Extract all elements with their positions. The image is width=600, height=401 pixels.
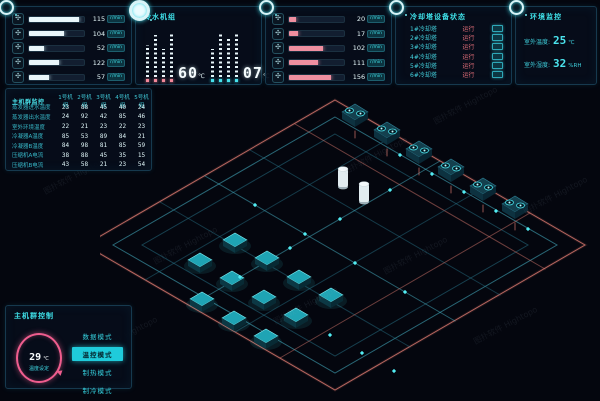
outdoor-temp-value: 25: [553, 34, 566, 47]
fan-icon: ✣: [12, 57, 24, 69]
cell-value: 85: [56, 133, 75, 140]
pump-bar: [28, 45, 85, 52]
cell-value: 40: [113, 104, 132, 111]
cell-value: 23: [94, 123, 113, 130]
chiller-unit: [248, 290, 280, 311]
tower-run-status: 运行: [450, 52, 487, 61]
tower-indicator[interactable]: [492, 53, 503, 60]
pump-value: 52: [89, 44, 105, 52]
cell-value: 38: [56, 152, 75, 159]
fan-icon: ✣: [12, 28, 24, 40]
tower-run-status: 运行: [450, 33, 487, 42]
pump-unit-badge: r/min: [367, 30, 385, 38]
chiller-unit: [186, 292, 218, 313]
return-temp-bars: [211, 33, 238, 82]
tower-name: 3#冷却塔: [410, 42, 450, 51]
tower-name: 5#冷却塔: [410, 61, 450, 70]
pipe-chilled-loop: [113, 117, 557, 373]
pump-value: 20: [349, 15, 365, 23]
cell-value: 21: [94, 161, 113, 168]
pump-bar: [288, 74, 345, 81]
pump-unit-badge: r/min: [367, 59, 385, 67]
cell-value: 21: [75, 123, 94, 130]
pump-row: ✣ 115 r/min: [12, 13, 125, 26]
chiller-unit: [280, 308, 312, 329]
panel-title: 冷水机组: [136, 7, 261, 24]
cell-value: 43: [56, 161, 75, 168]
tower-indicator[interactable]: [492, 71, 503, 78]
pump-row: ✣ 20 r/min: [272, 13, 385, 26]
storage-tanks: [338, 167, 369, 205]
pump-unit-badge: r/min: [107, 15, 125, 23]
fan-icon: ✣: [272, 42, 284, 54]
tower-run-status: 运行: [450, 24, 487, 33]
supply-temp-unit: ℃: [198, 73, 205, 80]
cell-value: 92: [75, 113, 94, 120]
fan-icon: ✣: [12, 71, 24, 83]
cell-value: 85: [113, 113, 132, 120]
table-row: 压缩机A电流 38 88 45 35 15: [12, 151, 147, 161]
cell-value: 24: [132, 104, 151, 111]
cell-value: 35: [113, 152, 132, 159]
tower-indicator[interactable]: [492, 43, 503, 50]
tower-status-row: 6#冷却塔 运行: [396, 70, 511, 79]
cell-value: 54: [132, 161, 151, 168]
panel-tower-status: 冷却塔设备状态 1#冷却塔 运行 2#冷却塔 运行 3#冷却塔 运行 4#冷却塔…: [395, 6, 512, 85]
outdoor-humidity: 室外湿度: 32 %RH: [524, 57, 590, 70]
panel-host-table: 主机群监控 1号机组 2号机组 3号机组 4号机组 5号机组 蒸发器进水温度 2…: [5, 88, 152, 171]
row-label: 压缩机B电流: [12, 161, 56, 169]
cell-value: 58: [75, 161, 94, 168]
pump-value: 102: [349, 44, 365, 52]
cell-value: 22: [113, 123, 132, 130]
table-row: 蒸发器进水温度 23 88 45 40 24: [12, 103, 147, 113]
pump-bar: [28, 59, 85, 66]
mode-button-temp-control[interactable]: 温控模式: [72, 347, 123, 361]
panel-environment: 环境监控 室外温度: 25 ℃ 室外湿度: 32 %RH: [515, 6, 597, 85]
cell-value: 85: [113, 142, 132, 149]
chiller-unit: [283, 270, 315, 291]
pump-unit-badge: r/min: [367, 44, 385, 52]
pump-bar: [288, 59, 345, 66]
mode-buttons: 数据模式 温控模式 制热模式 制冷模式: [72, 329, 123, 397]
tower-indicator[interactable]: [492, 62, 503, 69]
tower-name: 1#冷却塔: [410, 24, 450, 33]
fan-icon: ✣: [12, 42, 24, 54]
fan-icon: ✣: [272, 71, 284, 83]
pump-unit-badge: r/min: [367, 15, 385, 23]
tower-status-row: 1#冷却塔 运行: [396, 24, 511, 33]
cell-value: 84: [56, 142, 75, 149]
table-row: 冷凝器A温度 85 53 89 84 21: [12, 131, 147, 141]
pump-row: ✣ 104 r/min: [12, 27, 125, 40]
cell-value: 59: [132, 142, 151, 149]
temp-setpoint-gauge: 29℃ 温度设定: [16, 333, 62, 383]
outdoor-humidity-label: 室外湿度:: [524, 60, 550, 69]
fan-icon: ✣: [272, 57, 284, 69]
tower-status-row: 4#冷却塔 运行: [396, 52, 511, 61]
pipe-grid-line: [280, 213, 530, 358]
tower-run-status: 运行: [450, 61, 487, 70]
cell-value: 45: [94, 104, 113, 111]
table-row: 蒸发器出水温度 24 92 42 85 46: [12, 112, 147, 122]
pump-bar: [288, 45, 345, 52]
chiller-units: [184, 233, 347, 350]
row-label: 蒸发器进水温度: [12, 103, 56, 111]
pump-row: ✣ 122 r/min: [12, 56, 125, 69]
pump-unit-badge: r/min: [107, 30, 125, 38]
tank-cylinder: [359, 182, 369, 205]
pump-unit-badge: r/min: [107, 59, 125, 67]
pipe-condenser-loop: [100, 100, 585, 390]
panel-pumps-left: ✣ 115 r/min ✣ 104 r/min ✣ 52 r/min ✣ 122…: [5, 6, 132, 85]
pump-row: ✣ 156 r/min: [272, 71, 385, 84]
cell-value: 24: [56, 113, 75, 120]
cell-value: 23: [113, 161, 132, 168]
mode-button-data[interactable]: 数据模式: [72, 329, 123, 343]
pump-bar: [288, 16, 345, 23]
outdoor-temp-unit: ℃: [568, 40, 574, 46]
chiller-unit: [184, 253, 216, 274]
tower-name: 2#冷却塔: [410, 33, 450, 42]
chiller-unit: [250, 329, 282, 350]
chiller-unit: [216, 271, 248, 292]
pump-bar: [28, 16, 85, 23]
setpoint-value: 29: [29, 352, 41, 363]
return-temp-value: 07: [243, 64, 263, 82]
cell-value: 21: [132, 133, 151, 140]
setpoint-label: 温度设定: [29, 365, 49, 372]
cell-value: 88: [75, 152, 94, 159]
pipe-inner-loop: [142, 134, 528, 356]
row-label: 冷凝器B温度: [12, 142, 56, 150]
row-label: 室外环境温度: [12, 123, 56, 131]
table-row: 冷凝器B温度 84 98 81 85 59: [12, 141, 147, 151]
tower-run-status: 运行: [450, 70, 487, 79]
panel-host-control: 主机群控制 29℃ 温度设定 数据模式 温控模式 制热模式 制冷模式: [5, 305, 132, 389]
table-row: 室外环境温度 22 21 23 22 23: [12, 122, 147, 132]
supply-temp-value: 60: [178, 64, 198, 82]
tank-cylinder: [338, 167, 348, 190]
supply-temp-bars: [146, 33, 173, 82]
pump-value: 17: [349, 30, 365, 38]
chiller-unit: [218, 311, 250, 332]
fan-icon: ✣: [272, 13, 284, 25]
row-label: 压缩机A电流: [12, 151, 56, 159]
panel-title: 冷却塔设备状态: [396, 7, 511, 24]
chiller-unit: [251, 251, 283, 272]
cell-value: 46: [132, 113, 151, 120]
panel-title: 环境监控: [516, 7, 596, 24]
panel-chiller-unit: 冷水机组 60℃ 07℃: [135, 6, 262, 85]
fan-icon: ✣: [12, 13, 24, 25]
pump-row: ✣ 17 r/min: [272, 27, 385, 40]
row-label: 冷凝器A温度: [12, 132, 56, 140]
mode-button-cooling[interactable]: 制冷模式: [72, 383, 123, 397]
fan-icon: ✣: [272, 28, 284, 40]
corner-ring-ornament: [129, 0, 150, 21]
tower-status-row: 2#冷却塔 运行: [396, 33, 511, 42]
cell-value: 98: [75, 142, 94, 149]
pump-row: ✣ 102 r/min: [272, 42, 385, 55]
tower-name: 6#冷却塔: [410, 70, 450, 79]
setpoint-unit: ℃: [43, 356, 49, 362]
pump-unit-badge: r/min: [367, 73, 385, 81]
panel-pumps-right: ✣ 20 r/min ✣ 17 r/min ✣ 102 r/min ✣ 111 …: [265, 6, 392, 85]
tower-status-row: 3#冷却塔 运行: [396, 42, 511, 51]
tower-run-status: 运行: [450, 42, 487, 51]
cell-value: 89: [94, 133, 113, 140]
tower-status-row: 5#冷却塔 运行: [396, 61, 511, 70]
table-row: 压缩机B电流 43 58 21 23 54: [12, 160, 147, 170]
table-header-row: 主机群监控 1号机组 2号机组 3号机组 4号机组 5号机组: [12, 93, 147, 103]
pipe-riser: [355, 131, 515, 230]
cell-value: 84: [113, 133, 132, 140]
cell-value: 23: [132, 123, 151, 130]
tower-indicator[interactable]: [492, 34, 503, 41]
chiller-unit: [219, 233, 251, 254]
pump-value: 57: [89, 73, 105, 81]
cell-value: 88: [75, 104, 94, 111]
pump-value: 104: [89, 30, 105, 38]
corner-ring-ornament: [389, 0, 404, 15]
pump-bar: [288, 30, 345, 37]
tower-name: 4#冷却塔: [410, 52, 450, 61]
pump-bar: [28, 74, 85, 81]
cell-value: 42: [94, 113, 113, 120]
cell-value: 81: [94, 142, 113, 149]
row-label: 蒸发器出水温度: [12, 113, 56, 121]
cell-value: 53: [75, 133, 94, 140]
outdoor-temp-label: 室外温度:: [524, 37, 550, 46]
pump-row: ✣ 57 r/min: [12, 71, 125, 84]
corner-ring-ornament: [509, 0, 524, 15]
pump-row: ✣ 52 r/min: [12, 42, 125, 55]
outdoor-humidity-value: 32: [553, 57, 566, 70]
cell-value: 23: [56, 104, 75, 111]
panel-title: 主机群控制: [6, 306, 131, 323]
outdoor-humidity-unit: %RH: [568, 63, 581, 69]
pipe-outer-glow: [100, 100, 585, 390]
corner-ring-ornament: [259, 0, 274, 15]
pump-value: 156: [349, 73, 365, 81]
pump-value: 115: [89, 15, 105, 23]
outdoor-temp: 室外温度: 25 ℃: [524, 34, 590, 47]
pump-value: 111: [349, 59, 365, 67]
pump-unit-badge: r/min: [107, 73, 125, 81]
tower-indicator[interactable]: [492, 25, 503, 32]
cell-value: 45: [94, 152, 113, 159]
mode-button-heating[interactable]: 制热模式: [72, 365, 123, 379]
chiller-unit: [315, 288, 347, 309]
pump-row: ✣ 111 r/min: [272, 56, 385, 69]
pump-unit-badge: r/min: [107, 44, 125, 52]
cell-value: 15: [132, 152, 151, 159]
pump-value: 122: [89, 59, 105, 67]
dashboard-root: { "watermark": "图扑软件 Hightopo", "panels"…: [0, 0, 600, 400]
cell-value: 22: [56, 123, 75, 130]
plant-isometric-scene: [100, 85, 600, 400]
pump-bar: [28, 30, 85, 37]
